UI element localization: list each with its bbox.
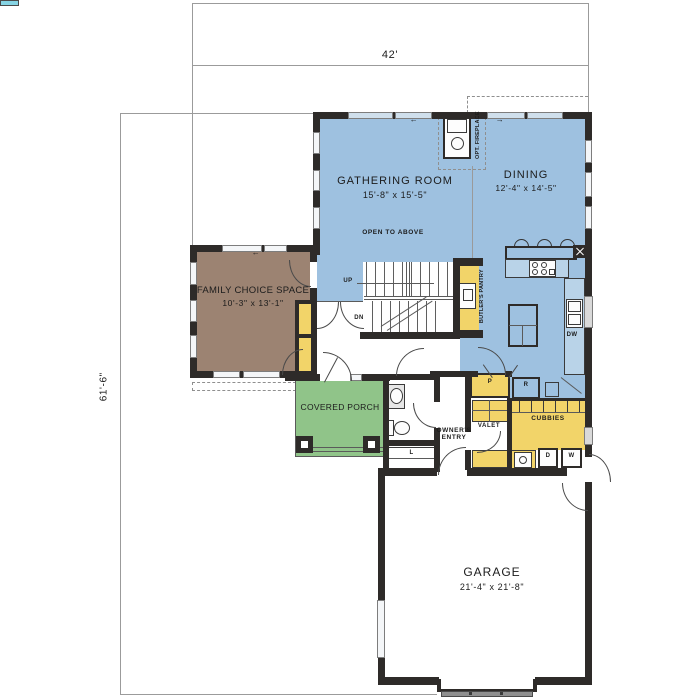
label-dw: DW <box>563 332 581 339</box>
stair-treads-upper <box>366 262 454 296</box>
room-label-valet: VALET <box>471 423 507 430</box>
stair-landing-line <box>364 299 454 300</box>
cubby-upper-band <box>508 401 586 412</box>
window-direction-arrow: → <box>490 115 510 124</box>
label-refrigerator: R <box>512 382 540 389</box>
window <box>584 427 593 445</box>
window <box>585 206 592 229</box>
label-up: UP <box>341 278 355 285</box>
powder-sink <box>390 388 403 404</box>
linen-shelf-line <box>385 458 437 459</box>
window <box>527 112 563 119</box>
window <box>190 262 197 285</box>
lot-line <box>120 694 437 695</box>
window <box>243 371 280 378</box>
note-open-to-above: OPEN TO ABOVE <box>348 229 438 236</box>
window <box>264 245 287 252</box>
valet-lockers <box>472 400 508 422</box>
label-dn: DN <box>352 315 366 322</box>
room-size-garage: 21'-4" x 21'-8" <box>432 582 552 592</box>
lot-line <box>120 113 313 114</box>
wall-garage-top <box>383 468 437 476</box>
fireplace-flue <box>451 137 464 150</box>
room-label-porch: COVERED PORCH <box>293 403 387 413</box>
wall-powder-right <box>434 374 440 402</box>
wall-powder-bottom <box>383 440 440 446</box>
garage-door-tick <box>469 692 472 695</box>
room-label-gathering: GATHERING ROOM <box>330 175 460 188</box>
floor-plan: 42' 61'-6" GATHERING ROOM 15'-8" x 15'-5… <box>0 0 700 700</box>
butlers-pantry-appliance-inner <box>463 289 473 301</box>
cooktop-burner <box>532 262 538 268</box>
island-cabinet-line <box>522 326 523 346</box>
room-label-family-choice: FAMILY CHOICE SPACE <box>194 286 312 297</box>
kitchen-sink-basin <box>568 301 581 312</box>
window <box>348 112 393 119</box>
label-dryer: D <box>538 453 558 460</box>
cooktop-burner <box>541 269 547 275</box>
porch-edge <box>295 456 385 457</box>
overhang-dashed-line <box>467 96 468 113</box>
stair-rail-cap <box>0 0 19 6</box>
label-pantry: P <box>470 379 510 386</box>
wall-family-right <box>310 252 317 262</box>
lot-line <box>192 3 589 4</box>
window <box>584 296 593 328</box>
label-opt-fireplace: OPT. FIREPLACE <box>475 104 481 166</box>
wall-garage-left <box>378 468 385 602</box>
window <box>190 335 197 358</box>
door-swing-exterior-side <box>589 454 611 482</box>
lot-line <box>192 3 193 248</box>
wall-garage-right <box>585 482 592 685</box>
up-leader-line <box>357 283 434 284</box>
door-swing-powder <box>413 403 436 428</box>
door-swing-garage-entry <box>438 447 466 475</box>
window-direction-arrow: ← <box>404 115 424 124</box>
door-swing-garage-rear <box>562 483 588 511</box>
dimension-line-depth <box>120 113 121 694</box>
cooktop-control <box>549 269 555 275</box>
porch-post-center <box>301 441 308 448</box>
cubby-band-top-wall <box>508 398 586 401</box>
cooktop-burner <box>541 262 547 268</box>
dining-counter <box>505 246 577 260</box>
window <box>377 600 385 658</box>
room-size-gathering: 15'-8" x 15'-5" <box>330 190 460 200</box>
lot-line <box>588 3 589 113</box>
valet-locker-divider <box>489 400 490 422</box>
room-label-garage: GARAGE <box>432 566 552 580</box>
stair-rail <box>409 262 410 296</box>
door-swing-foyer-closet <box>317 302 339 329</box>
stair-rail <box>406 262 407 296</box>
label-linen: L <box>386 450 437 457</box>
wall-garage-bottom <box>535 677 592 685</box>
toilet-bowl <box>394 421 410 435</box>
room-kitchen-floor <box>460 338 480 373</box>
room-size-family-choice: 10'-3" x 13'-1" <box>194 299 312 309</box>
stair-landing-line <box>364 296 454 297</box>
room-label-owners-entry: OWNER'S ENTRY <box>436 427 472 442</box>
island-cabinet-line <box>509 325 537 326</box>
valet-locker-divider <box>472 410 508 411</box>
window <box>585 140 592 163</box>
counter-appliance <box>545 382 559 397</box>
room-label-dining: DINING <box>482 169 570 182</box>
overhang-dashed-line <box>192 382 296 391</box>
wall-porch-top <box>285 374 320 381</box>
wall-garage-top <box>467 468 567 476</box>
window <box>313 170 320 191</box>
wall-garage-bottom <box>378 677 439 685</box>
wall-stair-bottom <box>360 332 460 339</box>
overhang-dashed-line <box>467 96 588 97</box>
window <box>313 207 320 229</box>
window <box>585 172 592 197</box>
wall-valet-cubbies <box>507 398 512 470</box>
dining-kitchen-divider <box>472 166 473 262</box>
room-label-cubbies: CUBBIES <box>512 415 584 422</box>
label-washer: W <box>561 453 582 460</box>
porch-post-center <box>368 441 375 448</box>
room-label-butlers-pantry: BUTLER'S PANTRY <box>479 260 485 332</box>
window <box>313 132 320 154</box>
wall-stair-right <box>453 258 460 339</box>
garage-door-tick <box>500 692 503 695</box>
firebox <box>447 119 467 133</box>
room-size-dining: 12'-4" x 14'-5" <box>482 184 570 194</box>
dimension-line-width <box>192 65 589 66</box>
cooktop-burner <box>532 269 538 275</box>
dimension-depth-label: 61'-6" <box>98 357 110 417</box>
utility-sink-drain <box>519 456 527 464</box>
dimension-width-label: 42' <box>330 49 450 62</box>
garage-door <box>441 691 533 697</box>
door-swing-hall <box>396 348 424 376</box>
kitchen-sink-basin <box>568 314 581 325</box>
window-direction-arrow: ← <box>246 248 266 257</box>
window <box>213 371 240 378</box>
